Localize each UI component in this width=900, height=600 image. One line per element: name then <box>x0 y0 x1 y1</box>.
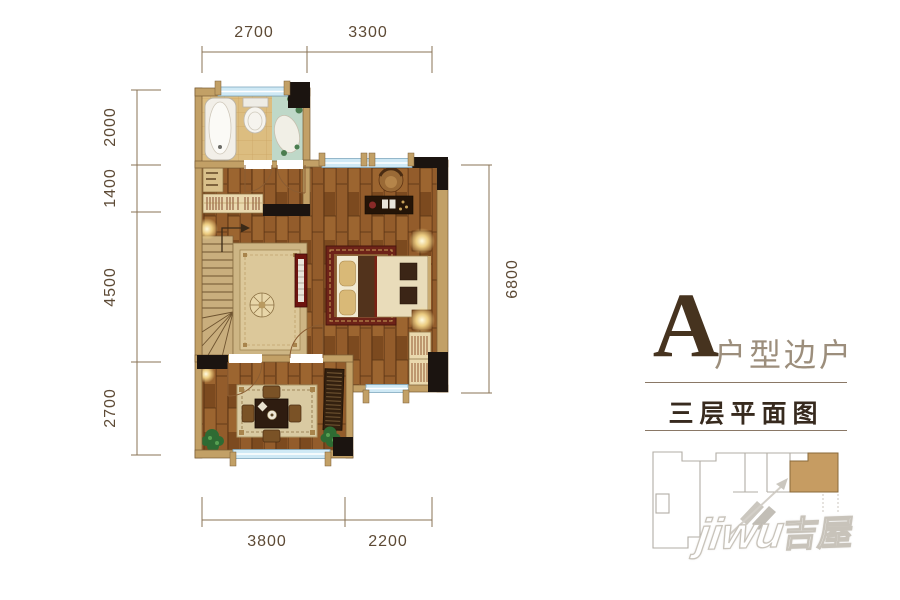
dim-label-bottom-2: 2200 <box>358 533 418 553</box>
unit-type-label: 户型边户 <box>714 330 854 376</box>
desk-chair <box>379 168 403 192</box>
dim-label-bottom-1: 3800 <box>237 533 297 553</box>
console-table <box>203 168 223 192</box>
toilet <box>243 98 268 133</box>
floor-plan-title: 三层平面图 <box>645 394 847 430</box>
watermark-latin: jiwu <box>694 508 787 560</box>
pillow <box>340 290 356 315</box>
watermark: jiwu吉屋 <box>694 502 900 560</box>
highlighted-unit <box>790 453 838 492</box>
dim-label-left-3: 4500 <box>102 257 122 317</box>
panel-divider-top <box>645 382 847 383</box>
floorplan-canvas: 2700 3300 2000 1400 4500 2700 6800 3800 … <box>0 0 900 600</box>
dining-chair <box>263 386 280 398</box>
dim-label-left-1: 2000 <box>102 97 122 157</box>
dining-chair <box>263 430 280 442</box>
dim-label-right-1: 6800 <box>504 249 524 309</box>
lamp-glow <box>409 228 435 254</box>
pillow <box>340 261 356 286</box>
wall-cabinet <box>295 254 307 307</box>
desk <box>365 196 413 214</box>
bench <box>323 369 344 431</box>
panel-divider-bottom <box>645 430 847 431</box>
watermark-cjk: 吉屋 <box>780 513 856 555</box>
bed <box>337 256 431 317</box>
dining-chair <box>242 405 254 422</box>
dining-chair <box>289 405 301 422</box>
dim-label-top-1: 2700 <box>224 24 284 44</box>
dim-label-left-4: 2700 <box>102 378 122 438</box>
nook-wardrobe <box>409 332 431 386</box>
dim-label-left-2: 1400 <box>102 158 122 218</box>
lamp-glow <box>409 307 435 333</box>
dim-label-top-2: 3300 <box>338 24 398 44</box>
